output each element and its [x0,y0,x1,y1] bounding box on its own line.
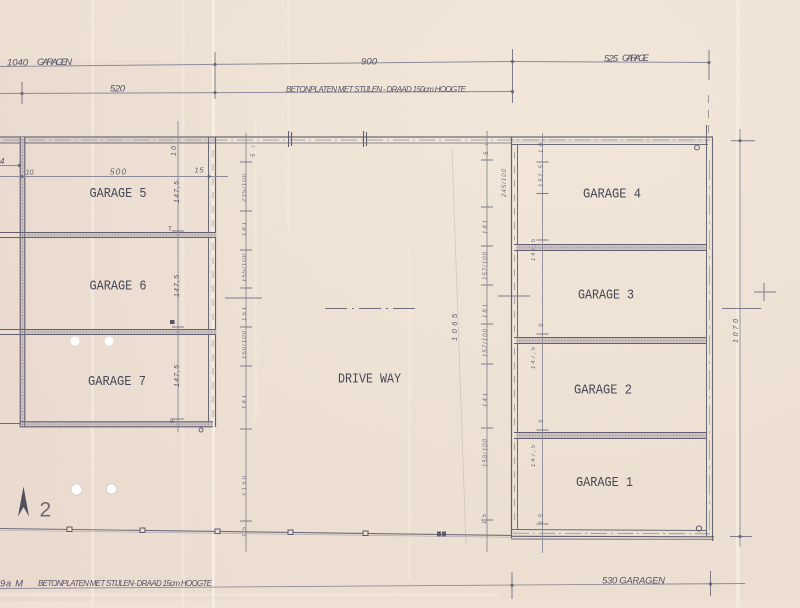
svg-text:155/100: 155/100 [242,253,248,282]
svg-text:900: 900 [361,57,378,68]
svg-text:BETONPLATEN MET STIJLEN - DRAA: BETONPLATEN MET STIJLEN - DRAAD 150cm HO… [286,85,467,94]
svg-text:BETONPLATEN MET STIJLEN- DRAAD: BETONPLATEN MET STIJLEN- DRAAD 15cm HOOG… [38,579,213,588]
svg-text:GARAGE 1: GARAGE 1 [576,475,633,491]
svg-text:GARAGE 6: GARAGE 6 [90,279,147,295]
svg-text:GARAGE 7: GARAGE 7 [88,374,146,390]
svg-text:GARAGE: GARAGE [622,53,650,64]
svg-text:525: 525 [604,54,619,65]
svg-text:151: 151 [242,307,248,321]
svg-text:10: 10 [26,168,35,177]
svg-text:9: 9 [170,418,174,425]
svg-text:147,5: 147,5 [174,365,181,387]
svg-text:04: 04 [0,156,5,166]
svg-text:141: 141 [483,393,489,407]
svg-text:GARAGE 5: GARAGE 5 [90,186,147,202]
svg-text:GARAGEN: GARAGEN [37,57,72,68]
svg-text:150/100: 150/100 [483,438,489,467]
svg-text:157/100: 157/100 [483,251,489,280]
svg-text:T: T [168,226,172,233]
svg-text:DRIVE WAY: DRIVE WAY [338,372,401,388]
svg-text:GARAGE 4: GARAGE 4 [583,187,641,203]
svg-text:181: 181 [242,222,248,236]
svg-text:150/100: 150/100 [242,330,248,359]
svg-text:157/100: 157/100 [483,328,489,357]
svg-text:181: 181 [483,304,489,318]
svg-text:245/100: 245/100 [502,168,508,198]
svg-text:520: 520 [110,84,126,95]
svg-text:147,5: 147,5 [174,181,181,203]
svg-text:147,5: 147,5 [174,275,181,297]
svg-text:500: 500 [110,168,127,177]
svg-text:GARAGE 2: GARAGE 2 [574,383,632,399]
svg-text:530 GARAGEN: 530 GARAGEN [602,576,665,587]
svg-text:2: 2 [40,499,52,522]
svg-text:1040: 1040 [7,58,29,69]
svg-text:15: 15 [195,166,205,175]
svg-text:141: 141 [242,395,248,409]
svg-text:+150: +150 [242,475,248,496]
svg-text:9a M: 9a M [0,579,23,590]
svg-text:181: 181 [483,220,489,234]
svg-text:235/100: 235/100 [242,173,248,203]
svg-text:GARAGE 3: GARAGE 3 [578,288,634,304]
